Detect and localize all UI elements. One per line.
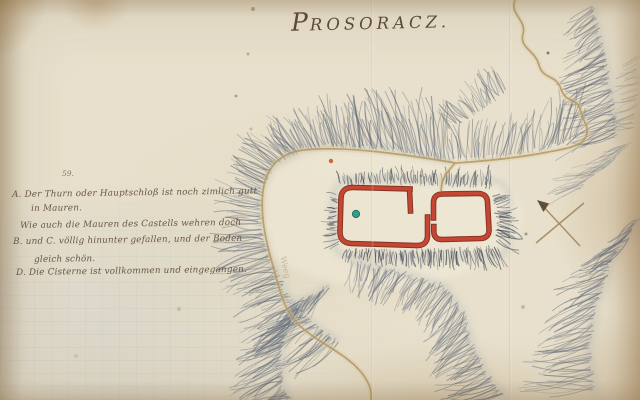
foxing-specks (0, 0, 2, 2)
terrain-drawing (0, 0, 640, 400)
map-canvas: PROSORACZ. 59. A. Der Thurn oder Hauptsc… (0, 0, 640, 400)
page-title: PROSORACZ. (291, 4, 451, 37)
folio-note: 59. (62, 169, 74, 178)
cistern-dot (352, 210, 359, 217)
legend-line: gleich schön. (34, 254, 95, 265)
compass-icon (536, 200, 584, 246)
legend-line: in Mauren. (31, 203, 82, 214)
